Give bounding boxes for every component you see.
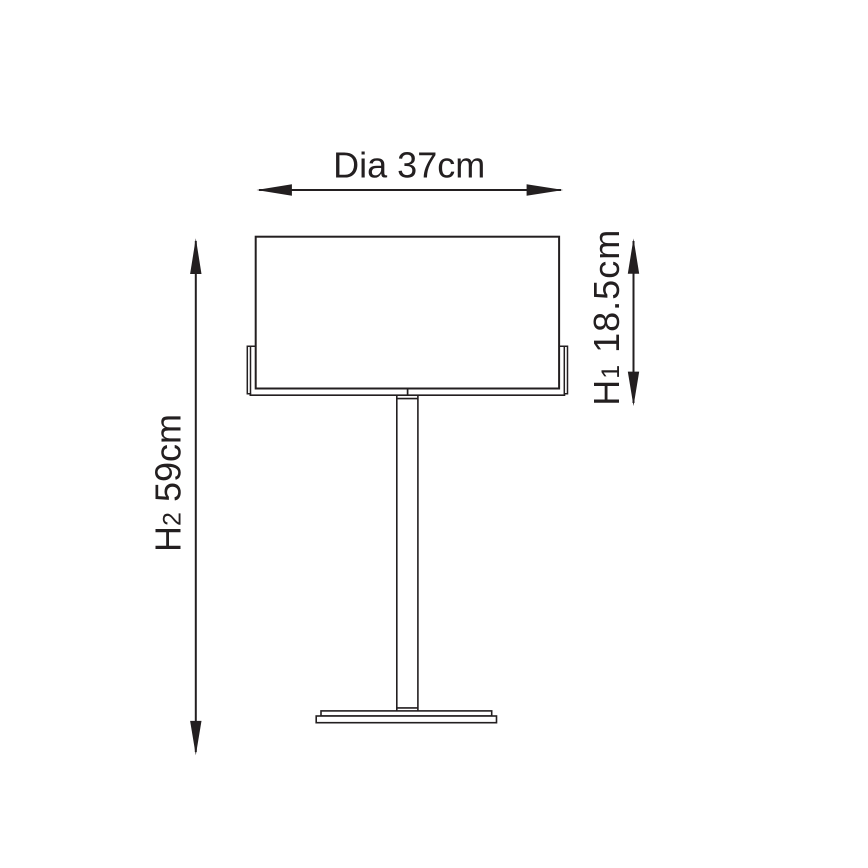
svg-text:Dia 37cm: Dia 37cm: [333, 145, 485, 186]
svg-text:H2 59cm: H2 59cm: [148, 414, 189, 552]
svg-text:H1 18.5cm: H1 18.5cm: [586, 229, 627, 406]
